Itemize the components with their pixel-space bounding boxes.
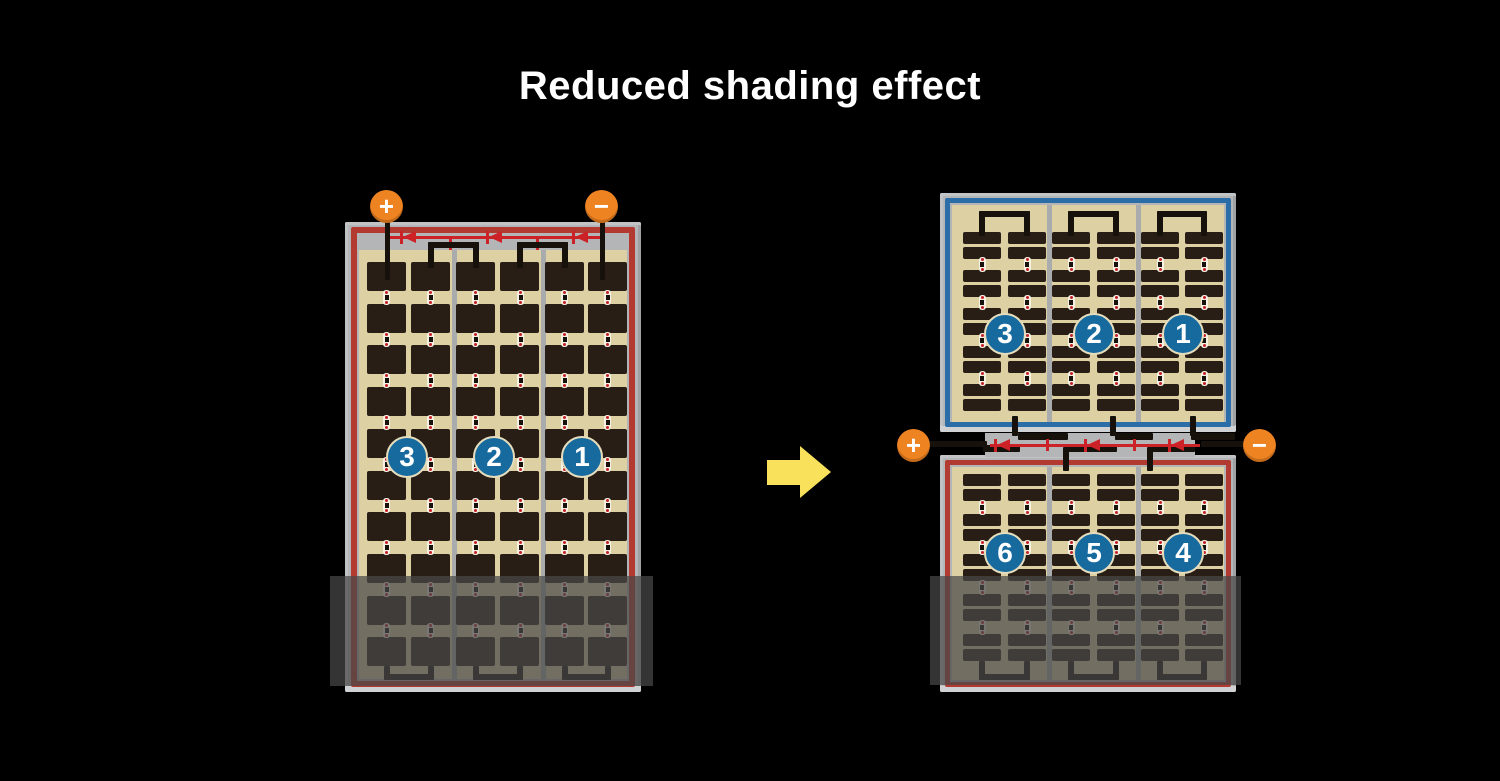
string-bridge-wire [428,242,479,248]
string-bridge-wire [979,211,1030,217]
string-number-badge: 2 [1073,313,1115,355]
transform-arrow-icon [765,446,831,498]
diode-triangle [489,231,502,243]
plus-icon: + [379,193,394,219]
bypass-diode-icon [400,231,416,244]
string-bridge-wire [1068,211,1119,217]
string-bridge-wire [473,242,479,268]
string-number-badge: 2 [473,436,515,478]
page-title: Reduced shading effect [0,64,1500,109]
string-bridge-wire [1157,211,1207,217]
string-bridge-wire [562,242,568,268]
string-number: 2 [1086,318,1102,350]
string-number-badge: 5 [1073,532,1115,574]
string-bridge-wire [1068,211,1074,236]
bus-bar-segment [1018,433,1068,440]
string-number: 6 [997,537,1013,569]
minus-icon: − [1252,432,1267,458]
bypass-diode-icon [1168,439,1184,452]
string-bridge-wire [428,242,434,268]
bypass-diode-icon [994,439,1010,452]
left-shading-overlay [330,576,653,686]
negative-terminal: − [1243,429,1276,462]
diode-triangle [1087,439,1100,451]
bus-bar-segment [1191,433,1235,440]
negative-terminal: − [585,190,618,223]
bus-riser-wire [1147,447,1153,471]
bypass-diode-icon [1084,439,1100,452]
string-bridge-wire [517,242,568,248]
diode-tap-wire [1133,439,1136,451]
diode-tap-wire [1046,439,1049,451]
string-bridge-wire [517,242,523,268]
string-number: 3 [399,441,415,473]
minus-icon: − [594,193,609,219]
arrow-shaft [767,460,800,485]
bypass-diode-icon [572,231,588,244]
string-number-badge: 6 [984,532,1026,574]
string-number: 5 [1086,537,1102,569]
left-module: 3 2 1 + − [330,190,655,692]
string-number-badge: 1 [1162,313,1204,355]
diode-triangle [997,439,1010,451]
right-module: 3 2 1 6 5 4 + − [895,190,1285,695]
string-number-badge: 3 [984,313,1026,355]
string-bridge-wire [1201,211,1207,236]
positive-terminal: + [370,190,403,223]
string-bridge-wire [1024,211,1030,236]
diode-triangle [575,231,588,243]
string-number-badge: 1 [561,436,603,478]
bus-riser-wire [1063,447,1069,471]
string-number-badge: 3 [386,436,428,478]
plus-icon: + [906,432,921,458]
string-bridge-wire [979,211,985,236]
string-number: 2 [486,441,502,473]
string-bridge-wire [1157,211,1163,236]
bus-riser-wire [1012,416,1018,436]
bypass-diode-icon [486,231,502,244]
string-number: 1 [574,441,590,473]
string-number: 3 [997,318,1013,350]
diode-triangle [1171,439,1184,451]
arrow-head [800,446,831,498]
string-bridge-wire [1113,211,1119,236]
diode-triangle [403,231,416,243]
bus-riser-wire [1190,416,1196,436]
string-number: 1 [1175,318,1191,350]
right-shading-overlay [930,576,1241,685]
string-number-badge: 4 [1162,532,1204,574]
bus-riser-wire [1110,416,1116,436]
positive-terminal: + [897,429,930,462]
diagram-canvas: Reduced shading effect 3 2 1 + − 3 2 1 6… [0,0,1500,781]
string-number: 4 [1175,537,1191,569]
